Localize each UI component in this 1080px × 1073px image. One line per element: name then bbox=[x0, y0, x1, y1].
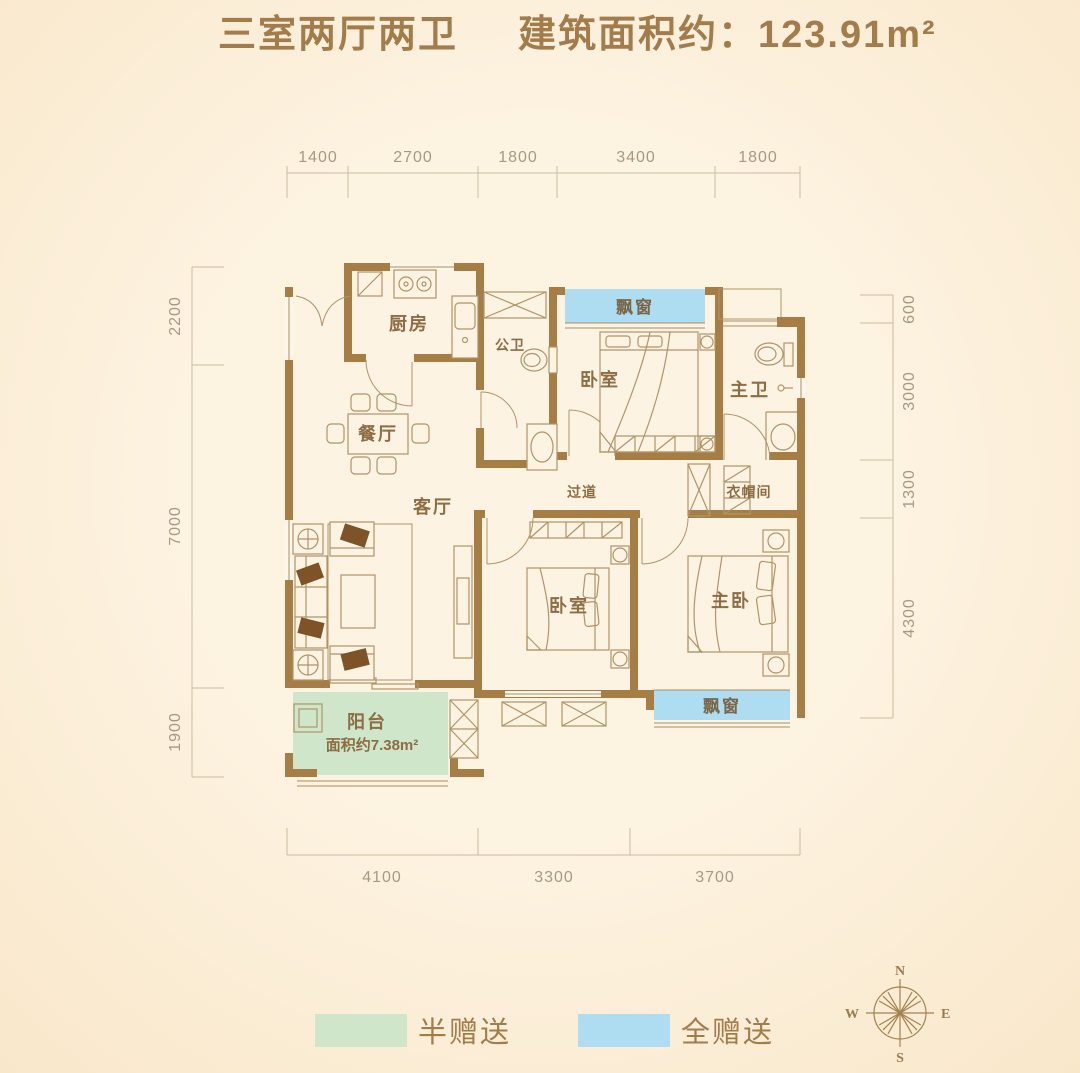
label-cloakroom: 衣帽间 bbox=[727, 484, 772, 500]
title-area: 建筑面积约：123.91m² bbox=[518, 14, 937, 56]
legend-full-gift-label: 全赠送 bbox=[681, 1016, 774, 1049]
compass-east: E bbox=[941, 1007, 950, 1022]
title-layout: 三室两厅两卫 bbox=[218, 13, 458, 56]
label-hallway: 过道 bbox=[567, 484, 597, 500]
label-master-bedroom: 主卧 bbox=[711, 590, 751, 611]
dim-top-3: 1800 bbox=[498, 149, 538, 166]
bedroom-top-furniture bbox=[600, 332, 715, 452]
dim-left-3: 1900 bbox=[167, 712, 184, 752]
label-bedroom-mid: 卧室 bbox=[549, 595, 589, 616]
dim-right-4: 4300 bbox=[901, 598, 918, 638]
dim-right-1: 600 bbox=[901, 294, 918, 324]
label-dining: 餐厅 bbox=[357, 423, 398, 444]
compass-south: S bbox=[896, 1051, 904, 1066]
dim-top-1: 1400 bbox=[298, 149, 338, 166]
dim-right-3: 1300 bbox=[901, 469, 918, 509]
toilet-tank bbox=[784, 343, 793, 366]
label-master-bath: 主卫 bbox=[730, 379, 770, 400]
legend-full-gift-swatch bbox=[578, 1014, 670, 1047]
dimensions-top: 1400 2700 1800 3400 1800 bbox=[287, 149, 800, 198]
dim-left-2: 7000 bbox=[167, 506, 184, 546]
dim-bottom-2: 3300 bbox=[534, 869, 574, 886]
dimensions-left: 2200 7000 1900 bbox=[167, 267, 224, 777]
label-guest-bath: 公卫 bbox=[495, 337, 525, 353]
dim-bottom-3: 3700 bbox=[695, 869, 735, 886]
dim-top-4: 3400 bbox=[616, 149, 656, 166]
compass-north: N bbox=[895, 964, 905, 979]
floorplan-svg: 三室两厅两卫 建筑面积约：123.91m² 1400 2700 1800 340… bbox=[0, 0, 1080, 1073]
label-bedroom-top: 卧室 bbox=[580, 369, 620, 390]
legend: 半赠送 全赠送 bbox=[315, 1014, 774, 1049]
floorplan-page: 三室两厅两卫 建筑面积约：123.91m² 1400 2700 1800 340… bbox=[0, 0, 1080, 1073]
label-balcony-area: 面积约7.38m² bbox=[326, 736, 419, 754]
dim-bottom-1: 4100 bbox=[362, 869, 402, 886]
dim-left-1: 2200 bbox=[167, 296, 184, 336]
dim-top-5: 1800 bbox=[738, 149, 778, 166]
label-living: 客厅 bbox=[413, 496, 453, 517]
label-balcony: 阳台 bbox=[347, 711, 387, 732]
legend-half-gift-swatch bbox=[315, 1014, 407, 1047]
compass-west: W bbox=[845, 1007, 859, 1022]
label-bay-window-bottom: 飘窗 bbox=[703, 696, 741, 716]
dimensions-right: 600 3000 1300 4300 bbox=[860, 294, 918, 718]
coffee-table bbox=[341, 575, 375, 628]
nightstand bbox=[611, 546, 629, 564]
toilet-tank bbox=[549, 347, 557, 373]
page-title: 三室两厅两卫 建筑面积约：123.91m² bbox=[218, 13, 937, 56]
legend-half-gift-label: 半赠送 bbox=[418, 1016, 511, 1049]
dim-top-2: 2700 bbox=[393, 149, 433, 166]
stove bbox=[394, 270, 436, 298]
dim-right-2: 3000 bbox=[901, 371, 918, 411]
dimensions-bottom: 4100 3300 3700 bbox=[287, 828, 800, 886]
nightstand bbox=[611, 650, 629, 668]
label-kitchen: 厨房 bbox=[389, 313, 429, 334]
compass-rose: N S E W bbox=[845, 964, 950, 1066]
label-bay-window-top: 飘窗 bbox=[616, 297, 654, 317]
